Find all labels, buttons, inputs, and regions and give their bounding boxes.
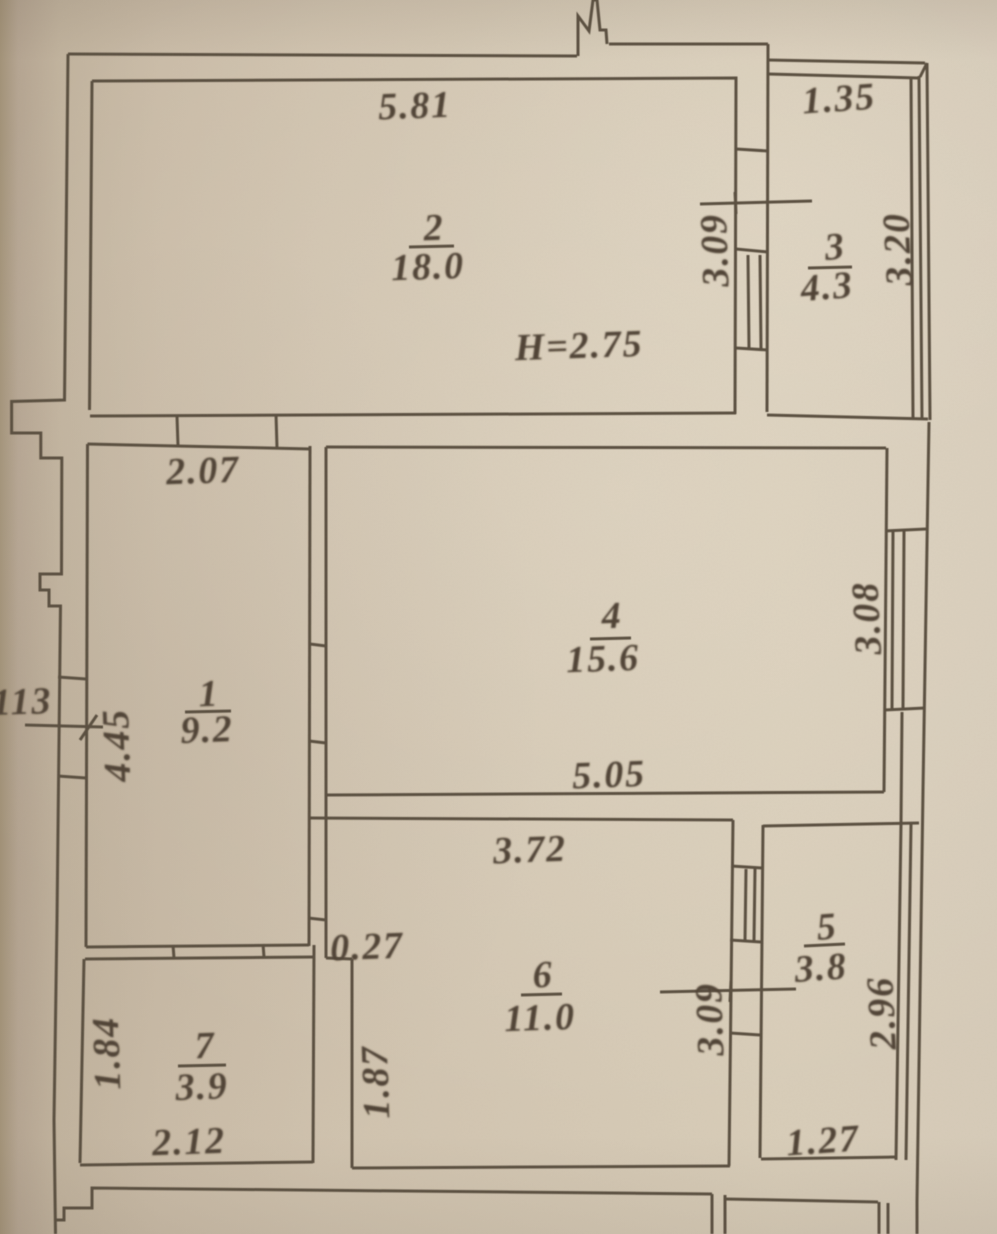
svg-text:5.81: 5.81 [377,84,452,129]
svg-text:113: 113 [0,680,53,724]
svg-text:9.2: 9.2 [180,708,234,752]
svg-text:7: 7 [194,1025,216,1068]
svg-text:5: 5 [815,905,839,948]
svg-text:5.05: 5.05 [571,753,646,798]
svg-text:3.9: 3.9 [174,1065,229,1109]
svg-text:2.96: 2.96 [859,975,905,1052]
svg-text:15.6: 15.6 [565,637,640,682]
svg-text:1.87: 1.87 [354,1044,399,1119]
svg-text:3.72: 3.72 [491,828,567,873]
svg-text:1.27: 1.27 [785,1117,862,1164]
svg-text:1.35: 1.35 [801,75,877,122]
svg-text:3.20: 3.20 [875,211,921,288]
svg-text:H=2.75: H=2.75 [513,323,644,369]
svg-text:1.84: 1.84 [85,1015,130,1090]
svg-text:3.8: 3.8 [792,945,849,991]
svg-text:2.12: 2.12 [150,1120,226,1165]
svg-text:2.07: 2.07 [164,449,240,494]
svg-text:2: 2 [422,207,445,250]
svg-text:11.0: 11.0 [504,996,577,1040]
svg-text:3: 3 [822,225,847,269]
svg-text:6: 6 [532,954,554,997]
svg-text:18.0: 18.0 [390,245,465,290]
svg-text:3.09: 3.09 [693,212,738,288]
svg-text:3.08: 3.08 [844,580,890,657]
svg-text:4.3: 4.3 [798,264,855,311]
svg-text:0.27: 0.27 [329,925,404,970]
svg-text:3.09: 3.09 [688,981,733,1057]
svg-text:4.45: 4.45 [95,707,140,783]
svg-text:4: 4 [600,595,623,638]
